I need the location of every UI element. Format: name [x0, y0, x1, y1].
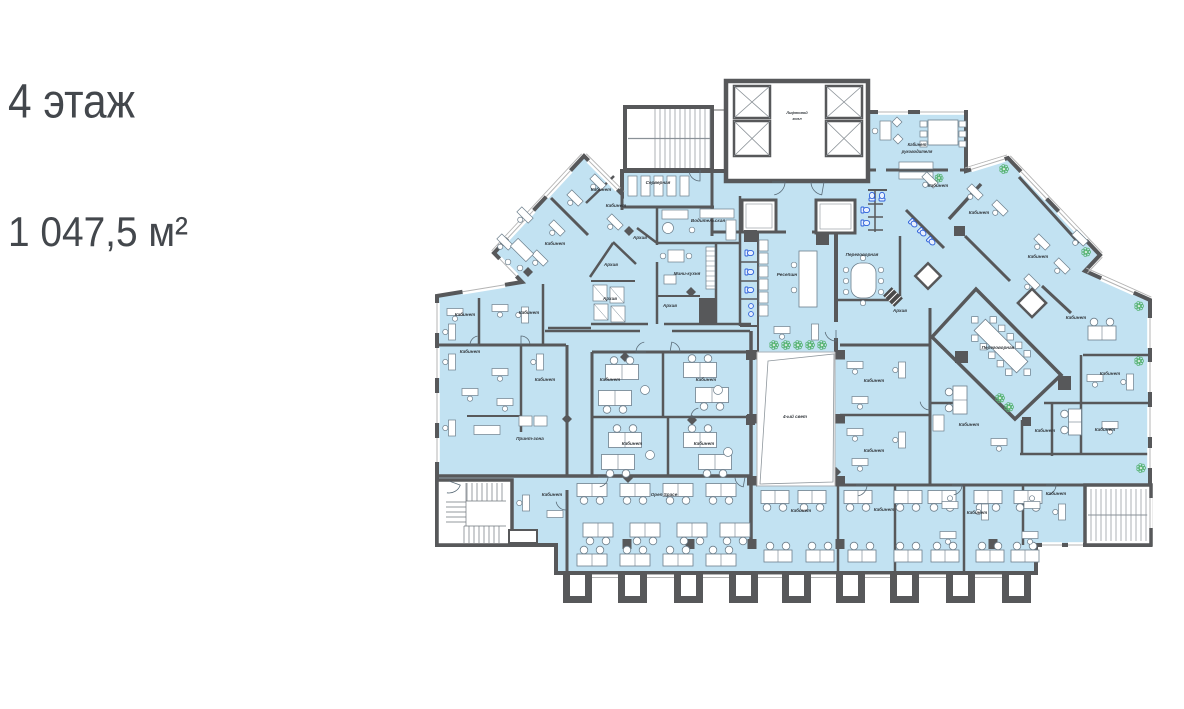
svg-text:Кабинет: Кабинет	[864, 377, 884, 383]
svg-text:Архив: Архив	[662, 303, 677, 308]
svg-text:Кабинет: Кабинет	[591, 186, 611, 192]
svg-text:Серверная: Серверная	[646, 180, 671, 185]
svg-text:4 этаж: 4 этаж	[8, 76, 135, 129]
svg-text:Кабинет: Кабинет	[1046, 490, 1066, 496]
svg-text:Кабинет: Кабинет	[694, 440, 714, 446]
svg-text:Лифтовой: Лифтовой	[785, 110, 808, 115]
svg-text:Архив: Архив	[632, 235, 647, 240]
svg-text:Кабинет: Кабинет	[874, 506, 894, 512]
svg-text:Переговорная: Переговорная	[846, 252, 879, 257]
svg-text:Мини-кухня: Мини-кухня	[674, 271, 701, 276]
svg-text:Переговорная: Переговорная	[982, 345, 1015, 350]
svg-text:Кабинет: Кабинет	[1035, 427, 1055, 433]
svg-text:Кабинет: Кабинет	[1100, 370, 1120, 376]
svg-text:Кабинет: Кабинет	[545, 240, 565, 246]
svg-text:Кабинет: Кабинет	[969, 209, 989, 215]
svg-text:Кабинет: Кабинет	[519, 309, 539, 315]
svg-text:4-ый свет: 4-ый свет	[782, 413, 807, 419]
svg-text:Кабинет: Кабинет	[1028, 253, 1048, 259]
svg-text:Архив: Архив	[603, 262, 618, 267]
svg-text:Кабинет: Кабинет	[967, 509, 987, 515]
svg-text:Кабинет: Кабинет	[606, 202, 626, 208]
svg-text:Архив: Архив	[602, 296, 617, 301]
svg-text:Кабинет: Кабинет	[696, 376, 716, 382]
svg-text:Кабинет: Кабинет	[959, 421, 979, 427]
svg-text:Кабинет: Кабинет	[455, 311, 475, 317]
svg-text:Open Space: Open Space	[651, 492, 678, 497]
svg-text:Водительская: Водительская	[691, 218, 725, 223]
svg-text:руководителя: руководителя	[901, 149, 933, 154]
svg-text:Принт-зона: Принт-зона	[516, 436, 544, 441]
svg-text:1 047,5 м²: 1 047,5 м²	[8, 208, 188, 255]
svg-text:Кабинет: Кабинет	[600, 376, 620, 382]
svg-text:Кабинет: Кабинет	[1095, 426, 1115, 432]
svg-text:холл: холл	[791, 116, 802, 121]
svg-text:Кабинет: Кабинет	[460, 348, 480, 354]
svg-text:Архив: Архив	[892, 308, 907, 313]
svg-text:Кабинет: Кабинет	[864, 447, 884, 453]
svg-text:Кабинет: Кабинет	[622, 440, 642, 446]
svg-text:Кабинет: Кабинет	[928, 182, 948, 188]
svg-text:Кабинет: Кабинет	[908, 142, 927, 147]
svg-text:Кабинет: Кабинет	[542, 491, 562, 497]
svg-text:Кабинет: Кабинет	[1066, 314, 1086, 320]
svg-text:Кабинет: Кабинет	[535, 376, 555, 382]
svg-text:Ресепшн: Ресепшн	[777, 272, 798, 277]
svg-text:Кабинет: Кабинет	[791, 507, 811, 513]
